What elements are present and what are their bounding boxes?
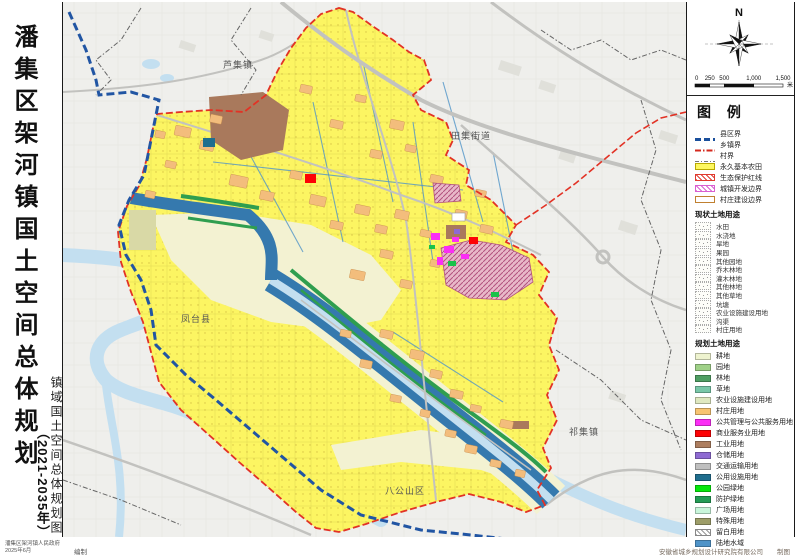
legend-swatch-line-icon	[695, 130, 715, 137]
legend-swatch-current-icon	[695, 257, 711, 265]
compiler-caption: 潘集区架河镇人民政府 2025年6月	[5, 541, 60, 555]
legend-swatch-current-icon	[695, 222, 711, 230]
legend-swatch-fill-icon	[695, 529, 711, 536]
legend-item-label: 耕地	[716, 351, 730, 361]
legend-item: 旱地	[695, 239, 788, 248]
title-sidebar: 潘集区架河镇国土空间总体规划 （2021-2035年） 镇域国土空间总体规划图	[3, 2, 63, 537]
svg-text:0: 0	[695, 76, 699, 82]
legend-item-label: 公园绿地	[716, 483, 744, 493]
compass-scalebar-block: N02505001,0001,500米	[687, 2, 794, 96]
legend-item: 农业设施建设用地	[695, 395, 788, 406]
map-place-label: 田集街道	[451, 130, 491, 141]
legend-item: 耕地	[695, 351, 788, 362]
legend-swatch-current-icon	[695, 282, 711, 290]
legend-swatch-outline-icon	[695, 196, 715, 203]
legend-item: 园地	[695, 362, 788, 373]
legend-item-label: 商业服务业用地	[716, 428, 765, 438]
plan-sheet: 潘集区架河镇国土空间总体规划 （2021-2035年） 镇域国土空间总体规划图 …	[0, 0, 800, 558]
legend-swatch-current-icon	[695, 300, 711, 308]
legend-item: 仓储用地	[695, 450, 788, 461]
legend-item-label: 交通运输用地	[716, 461, 758, 471]
svg-text:1,000: 1,000	[746, 76, 762, 82]
map-place-label: 芦集镇	[223, 59, 253, 70]
legend-item-label: 农业设施建设用地	[716, 395, 772, 405]
svg-text:500: 500	[719, 76, 730, 82]
legend-item: 乡镇界	[695, 139, 788, 150]
legend-current-header: 现状土地用途	[695, 209, 788, 220]
cartographer-suffix: 制图	[777, 549, 790, 556]
legend-swatch-line-icon	[695, 141, 715, 148]
legend-item-label: 草地	[716, 384, 730, 394]
legend-item: 生态保护红线	[695, 172, 788, 183]
legend-swatch-fill-icon	[695, 518, 711, 525]
legend-item: 城镇开发边界	[695, 183, 788, 194]
legend-item-label: 村庄建设边界	[720, 195, 762, 205]
legend-swatch-fill-icon	[695, 463, 711, 470]
legend-swatch-fill-icon	[695, 441, 711, 448]
legend-swatch-fill-icon	[695, 386, 711, 393]
legend-swatch-fill-icon	[695, 163, 715, 170]
svg-text:N: N	[735, 7, 743, 19]
legend-item: 林地	[695, 373, 788, 384]
legend-item: 交通运输用地	[695, 461, 788, 472]
map-place-label: 凤台县	[181, 313, 211, 324]
plan-main-title: 潘集区架河镇国土空间总体规划	[11, 24, 35, 472]
legend-item: 广场用地	[695, 505, 788, 516]
legend-swatch-fill-icon	[695, 353, 711, 360]
legend-item: 商业服务业用地	[695, 428, 788, 439]
legend-item-label: 林地	[716, 373, 730, 383]
legend-swatch-fill-icon	[695, 496, 711, 503]
map-place-label: 祁集镇	[569, 426, 599, 437]
legend-item: 草地	[695, 384, 788, 395]
legend-item-label: 永久基本农田	[720, 162, 762, 172]
legend-item: 水浇地	[695, 231, 788, 240]
legend-swatch-fill-icon	[695, 364, 711, 371]
legend-swatch-current-icon	[695, 308, 711, 316]
legend-swatch-current-icon	[695, 265, 711, 273]
legend-boundary-list: 县区界乡镇界村界永久基本农田生态保护红线城镇开发边界村庄建设边界	[695, 128, 788, 205]
legend-swatch-current-icon	[695, 291, 711, 299]
legend-item-label: 工业用地	[716, 439, 744, 449]
legend-swatch-fill-icon	[695, 375, 711, 382]
legend-swatch-fill-icon	[695, 507, 711, 514]
cartographer-name: 安徽省城乡规划设计研究院有限公司	[659, 549, 763, 556]
legend-item: 水田	[695, 222, 788, 231]
legend-current-list: 水田水浇地旱地果园其他园地乔木林地灌木林地其他林地其他草地坑塘农业设施建设用地沟…	[695, 222, 788, 334]
legend-item-label: 公用设施用地	[716, 472, 758, 482]
compiler-suffix: 编制	[74, 546, 87, 556]
legend-item-label: 村庄用地	[716, 324, 742, 334]
legend-item-label: 仓储用地	[716, 450, 744, 460]
legend-item: 村界	[695, 150, 788, 161]
legend-planned-list: 耕地园地林地草地农业设施建设用地村庄用地公共管理与公共服务用地商业服务业用地工业…	[695, 351, 788, 549]
legend-item: 公共管理与公共服务用地	[695, 417, 788, 428]
legend-item: 村庄建设边界	[695, 194, 788, 205]
territorial-map: 芦集镇田集街道凤台县八公山区祁集镇	[63, 2, 686, 537]
legend-swatch-line-icon	[695, 152, 715, 159]
legend-item-label: 留白用地	[716, 527, 744, 537]
legend-item-label: 村庄用地	[716, 406, 744, 416]
svg-text:1,500: 1,500	[775, 76, 791, 82]
legend-item-label: 广场用地	[716, 505, 744, 515]
legend-item: 永久基本农田	[695, 161, 788, 172]
legend-item: 特殊用地	[695, 516, 788, 527]
legend-item: 工业用地	[695, 439, 788, 450]
legend-item: 公园绿地	[695, 483, 788, 494]
legend-swatch-fill-icon	[695, 397, 711, 404]
legend-item-label: 乡镇界	[720, 140, 741, 150]
svg-text:米: 米	[787, 81, 793, 89]
map-canvas: 芦集镇田集街道凤台县八公山区祁集镇	[63, 2, 686, 537]
legend-item: 防护绿地	[695, 494, 788, 505]
legend-item: 县区界	[695, 128, 788, 139]
legend-swatch-fill-icon	[695, 408, 711, 415]
legend-item: 公用设施用地	[695, 472, 788, 483]
map-place-label: 八公山区	[385, 486, 425, 496]
legend-item: 留白用地	[695, 527, 788, 538]
legend-swatch-fill-icon	[695, 452, 711, 459]
legend-swatch-fill-icon	[695, 419, 711, 426]
legend-item-label: 园地	[716, 362, 730, 372]
legend-item-label: 城镇开发边界	[720, 184, 762, 194]
legend-swatch-current-icon	[695, 274, 711, 282]
legend-item-label: 村界	[720, 151, 734, 161]
legend-swatch-fill-icon	[695, 485, 711, 492]
legend-title: 图 例	[697, 102, 788, 122]
legend-item: 村庄用地	[695, 406, 788, 417]
legend-swatch-fill-icon	[695, 474, 711, 481]
legend-item-label: 生态保护红线	[720, 173, 762, 183]
legend-swatch-current-icon	[695, 317, 711, 325]
north-arrow-icon: N02505001,0001,500米	[687, 2, 794, 94]
legend-planned-header: 规划土地用途	[695, 338, 788, 349]
cartographer-caption: 安徽省城乡规划设计研究院有限公司制图	[659, 546, 790, 556]
compile-date: 2025年6月	[5, 548, 60, 555]
legend-swatch-current-icon	[695, 231, 711, 239]
svg-text:250: 250	[705, 76, 716, 82]
legend-item-label: 特殊用地	[716, 516, 744, 526]
legend-item: 其他草地	[695, 291, 788, 300]
legend-swatch-hatch-icon	[695, 185, 715, 192]
legend-panel: N02505001,0001,500米 图 例 县区界乡镇界村界永久基本农田生态…	[686, 2, 795, 537]
legend-item-label: 防护绿地	[716, 494, 744, 504]
legend-item-label: 公共管理与公共服务用地	[716, 417, 793, 427]
legend-item-label: 县区界	[720, 129, 741, 139]
legend-item: 村庄用地	[695, 325, 788, 334]
legend-item: 农业设施建设用地	[695, 308, 788, 317]
legend-swatch-fill-icon	[695, 430, 711, 437]
legend-swatch-current-icon	[695, 239, 711, 247]
legend-swatch-current-icon	[695, 248, 711, 256]
legend-swatch-hatch-icon	[695, 174, 715, 181]
legend-swatch-current-icon	[695, 325, 711, 333]
